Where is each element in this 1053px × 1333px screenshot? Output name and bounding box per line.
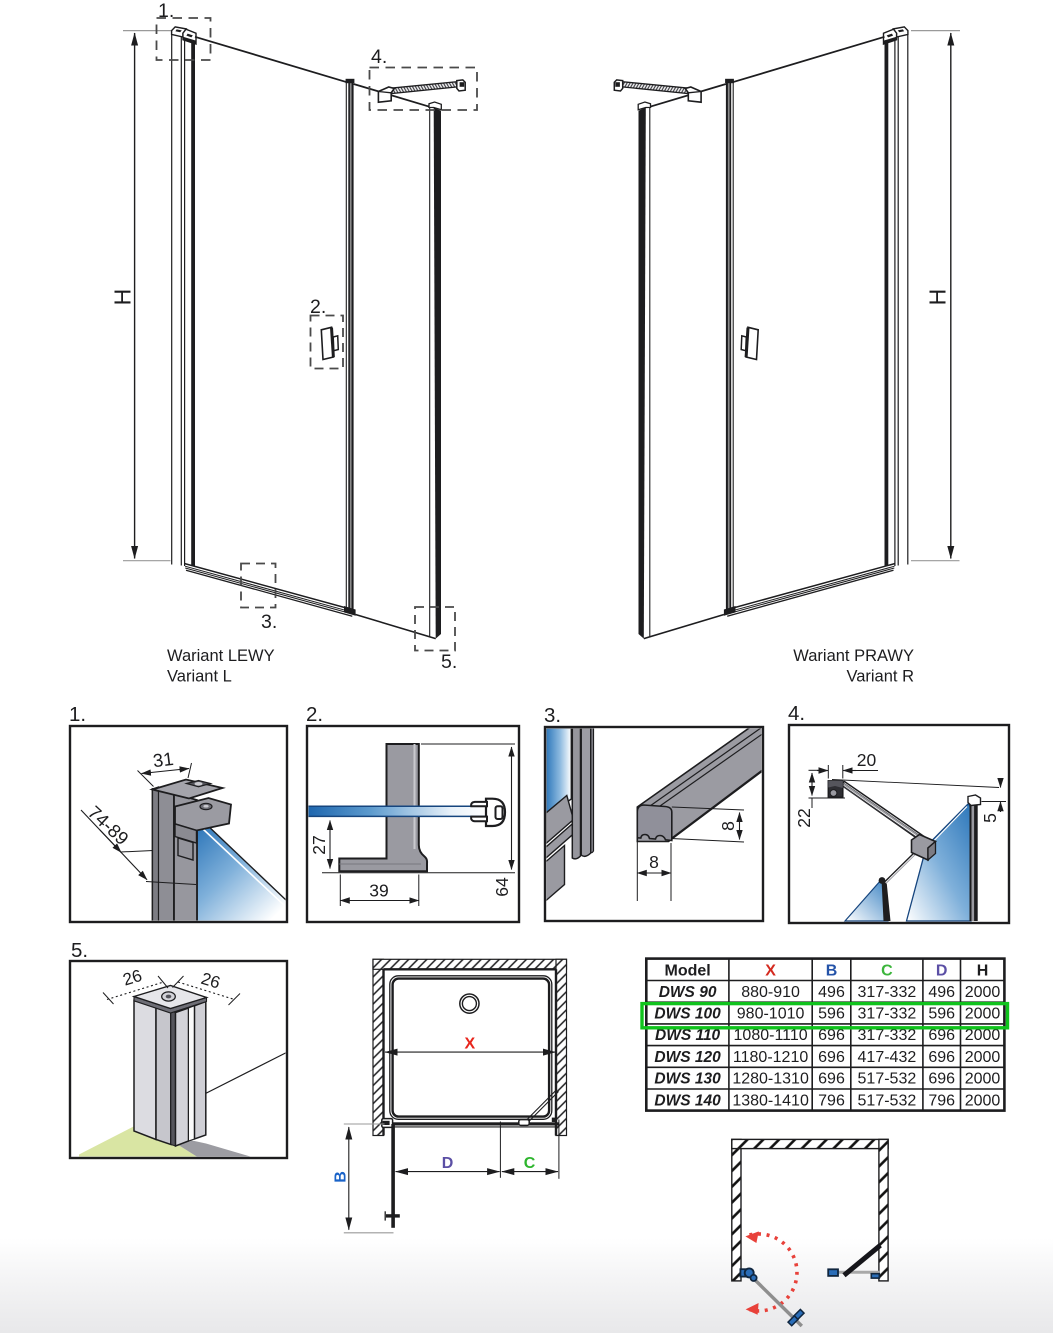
svg-text:2000: 2000 xyxy=(965,1092,1001,1109)
svg-text:696: 696 xyxy=(928,1071,955,1088)
svg-text:Wariant LEWY: Wariant LEWY xyxy=(167,647,275,665)
svg-text:880-910: 880-910 xyxy=(741,984,800,1001)
svg-text:3.: 3. xyxy=(261,611,277,633)
svg-text:2.: 2. xyxy=(306,703,323,726)
svg-text:4.: 4. xyxy=(788,702,805,725)
svg-text:317-332: 317-332 xyxy=(858,1006,917,1023)
svg-text:696: 696 xyxy=(818,1027,845,1044)
svg-text:8: 8 xyxy=(649,852,659,872)
svg-text:DWS 120: DWS 120 xyxy=(654,1049,721,1066)
svg-text:Variant R: Variant R xyxy=(846,668,914,686)
svg-text:Variant L: Variant L xyxy=(167,668,232,686)
svg-text:C: C xyxy=(881,963,893,980)
svg-text:22: 22 xyxy=(794,808,814,827)
svg-text:696: 696 xyxy=(928,1049,955,1066)
svg-text:DWS 90: DWS 90 xyxy=(659,984,717,1001)
svg-text:1.: 1. xyxy=(158,0,174,22)
svg-text:31: 31 xyxy=(152,748,175,771)
svg-text:D: D xyxy=(936,963,948,980)
svg-text:X: X xyxy=(765,963,776,980)
svg-text:317-332: 317-332 xyxy=(858,1027,917,1044)
svg-text:DWS 100: DWS 100 xyxy=(654,1006,721,1023)
svg-text:1180-1210: 1180-1210 xyxy=(733,1049,808,1066)
svg-text:4.: 4. xyxy=(371,46,387,68)
svg-text:27: 27 xyxy=(309,835,329,854)
svg-text:496: 496 xyxy=(928,984,955,1001)
svg-text:X: X xyxy=(464,1036,475,1053)
svg-text:2.: 2. xyxy=(310,296,326,318)
svg-text:496: 496 xyxy=(818,984,845,1001)
svg-text:517-532: 517-532 xyxy=(858,1092,917,1109)
svg-text:1380-1410: 1380-1410 xyxy=(732,1092,809,1109)
svg-text:B: B xyxy=(826,963,838,980)
svg-text:Wariant PRAWY: Wariant PRAWY xyxy=(793,647,914,665)
svg-text:2000: 2000 xyxy=(965,1071,1001,1088)
svg-text:3.: 3. xyxy=(544,704,561,727)
svg-text:596: 596 xyxy=(818,1006,845,1023)
svg-text:64: 64 xyxy=(492,877,512,897)
svg-text:5.: 5. xyxy=(441,651,457,673)
svg-text:5: 5 xyxy=(980,813,1000,823)
svg-text:1.: 1. xyxy=(69,703,86,726)
svg-text:696: 696 xyxy=(818,1071,845,1088)
svg-text:39: 39 xyxy=(369,881,388,901)
svg-text:2000: 2000 xyxy=(965,1027,1001,1044)
svg-text:8: 8 xyxy=(718,821,738,831)
svg-text:H: H xyxy=(977,963,989,980)
svg-text:696: 696 xyxy=(928,1027,955,1044)
svg-text:DWS 140: DWS 140 xyxy=(654,1092,721,1109)
svg-text:417-432: 417-432 xyxy=(858,1049,917,1066)
svg-text:696: 696 xyxy=(818,1049,845,1066)
svg-text:796: 796 xyxy=(928,1092,955,1109)
svg-text:2000: 2000 xyxy=(965,984,1001,1001)
svg-text:DWS 130: DWS 130 xyxy=(654,1071,721,1088)
svg-text:B: B xyxy=(333,1171,350,1183)
svg-text:20: 20 xyxy=(857,750,877,770)
svg-text:517-532: 517-532 xyxy=(858,1071,917,1088)
svg-text:2000: 2000 xyxy=(965,1049,1001,1066)
svg-text:1280-1310: 1280-1310 xyxy=(732,1071,809,1088)
svg-text:796: 796 xyxy=(818,1092,845,1109)
svg-text:596: 596 xyxy=(928,1006,955,1023)
svg-text:DWS 110: DWS 110 xyxy=(655,1027,721,1044)
svg-text:5.: 5. xyxy=(71,939,88,962)
svg-text:D: D xyxy=(442,1155,454,1172)
svg-text:H: H xyxy=(110,289,136,306)
svg-text:C: C xyxy=(524,1155,536,1172)
svg-text:1080-1110: 1080-1110 xyxy=(734,1027,808,1044)
svg-text:H: H xyxy=(925,289,951,306)
svg-text:2000: 2000 xyxy=(965,1006,1001,1023)
svg-text:Model: Model xyxy=(664,963,710,980)
svg-text:980-1010: 980-1010 xyxy=(737,1006,805,1023)
svg-text:317-332: 317-332 xyxy=(858,984,917,1001)
